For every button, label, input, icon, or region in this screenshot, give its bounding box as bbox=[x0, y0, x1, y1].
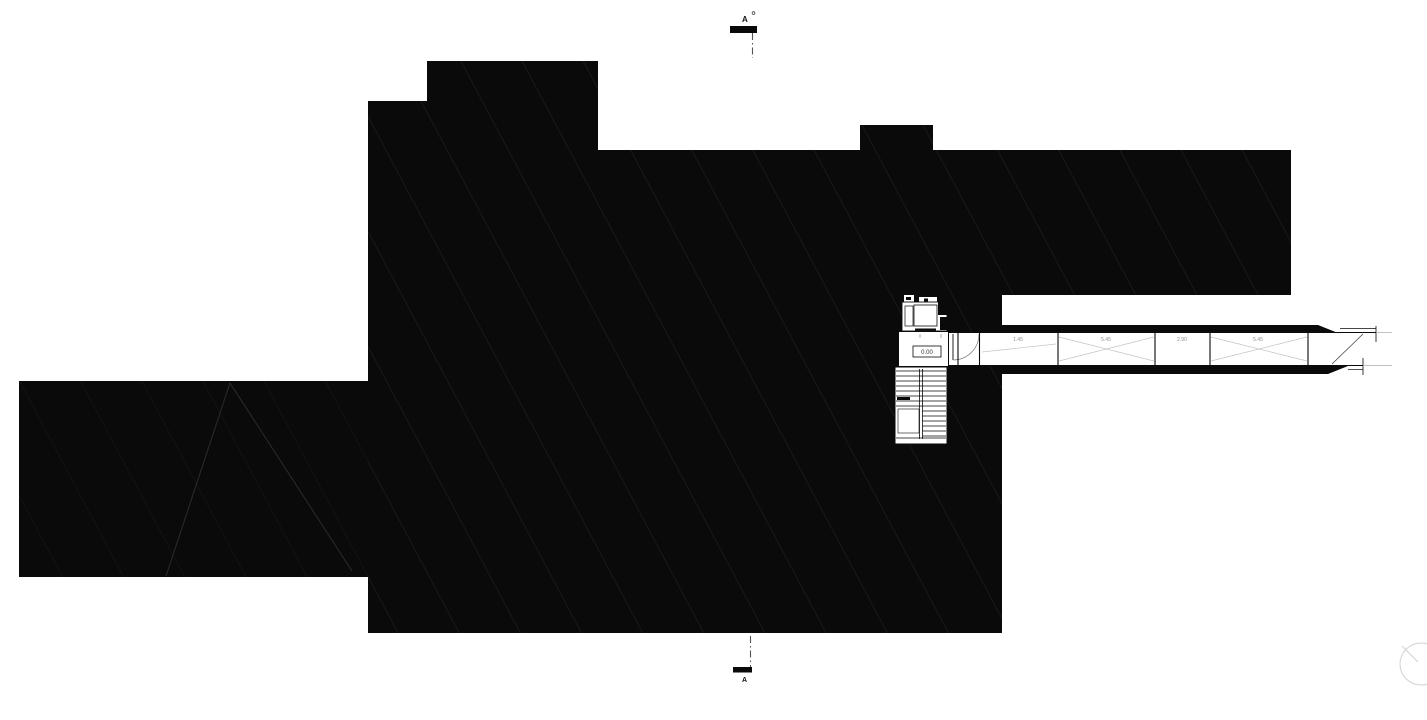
stair-well bbox=[895, 367, 947, 444]
left-roof-block-hatch bbox=[19, 381, 368, 577]
section-marker-bottom-flag bbox=[733, 667, 752, 673]
section-marker-bottom-label: A bbox=[742, 677, 747, 684]
roof-plan-drawing: A A 0.00 bbox=[0, 0, 1427, 720]
section-marker-top: A bbox=[730, 12, 757, 58]
section-marker-top-label: A bbox=[742, 15, 748, 24]
staircase bbox=[895, 367, 947, 444]
dim-label: 2.90 bbox=[1177, 337, 1187, 343]
section-marker-bottom: A bbox=[733, 636, 752, 684]
section-marker-top-tick bbox=[752, 12, 755, 15]
north-symbol-icon bbox=[1400, 643, 1427, 685]
elevator-door bbox=[915, 329, 936, 331]
level-tag-label: 0.00 bbox=[921, 350, 933, 356]
stair-break-mark bbox=[897, 397, 910, 400]
dim-label: 5.45 bbox=[1253, 337, 1263, 343]
dim-label: 1.45 bbox=[1013, 337, 1023, 343]
bridge-dimensions: 1.45 5.45 2.90 5.45 bbox=[1013, 337, 1263, 343]
section-marker-top-flag bbox=[730, 26, 757, 33]
bridge-wall-bottom bbox=[1002, 366, 1348, 374]
dim-label: 5.45 bbox=[1101, 337, 1111, 343]
main-roof-mass-hatch bbox=[368, 61, 1291, 633]
corridor-bridge: 1.45 5.45 2.90 5.45 bbox=[948, 325, 1392, 375]
elevator-cab bbox=[914, 305, 937, 326]
landing-lobby: 0.00 bbox=[899, 332, 1002, 366]
plan-svg: A A 0.00 bbox=[0, 0, 1427, 720]
building-mass bbox=[19, 61, 1291, 633]
bridge-wall-top bbox=[1002, 325, 1338, 333]
